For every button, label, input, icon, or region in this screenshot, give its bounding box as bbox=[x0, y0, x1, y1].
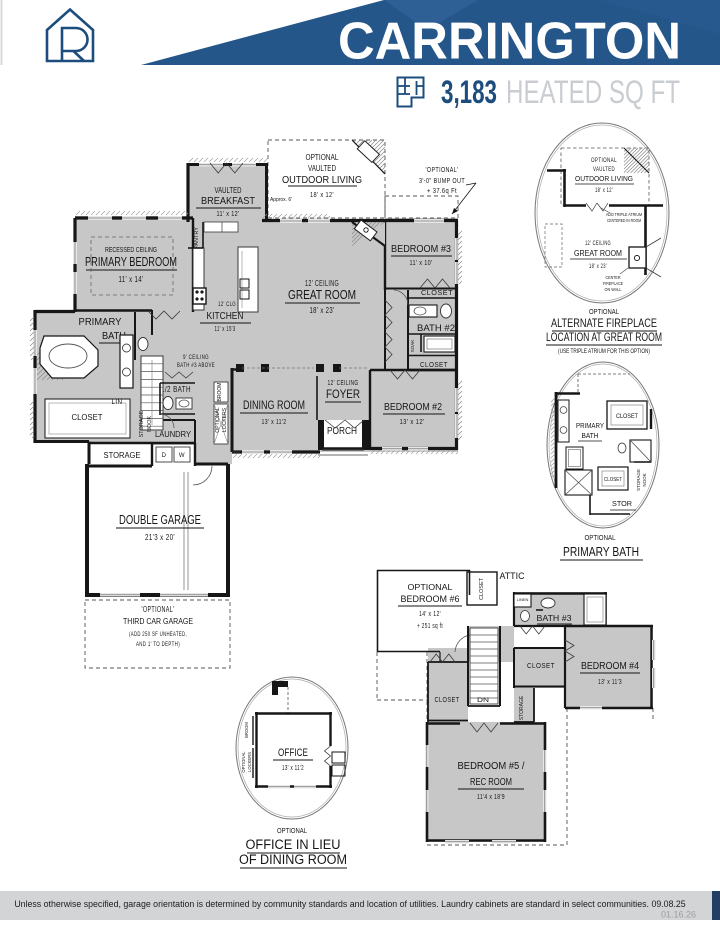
svg-text:11' x 14': 11' x 14' bbox=[119, 275, 144, 284]
svg-text:PORCH: PORCH bbox=[327, 426, 357, 437]
svg-text:LOCKERS: LOCKERS bbox=[247, 752, 252, 772]
svg-text:'OPTIONAL': 'OPTIONAL' bbox=[426, 165, 459, 174]
svg-text:CLOSET: CLOSET bbox=[527, 661, 555, 670]
svg-text:ADD TRIPLE ATRIUM: ADD TRIPLE ATRIUM bbox=[606, 212, 642, 217]
svg-text:VAULTED: VAULTED bbox=[215, 186, 242, 195]
svg-text:Approx. 6': Approx. 6' bbox=[270, 197, 292, 203]
svg-text:3,183: 3,183 bbox=[441, 74, 497, 110]
svg-text:DN: DN bbox=[477, 697, 489, 704]
svg-text:GREAT ROOM: GREAT ROOM bbox=[574, 248, 622, 258]
svg-text:CLOSET: CLOSET bbox=[604, 477, 623, 483]
svg-text:+ 251 sq ft: + 251 sq ft bbox=[417, 623, 443, 630]
svg-text:BROOM: BROOM bbox=[244, 722, 249, 738]
svg-text:OFFICE: OFFICE bbox=[278, 747, 308, 759]
svg-text:ON WALL: ON WALL bbox=[605, 287, 623, 292]
svg-text:BATH: BATH bbox=[582, 433, 599, 440]
svg-text:13' x 11'2: 13' x 11'2 bbox=[262, 417, 287, 426]
svg-text:OFFICE IN LIEU: OFFICE IN LIEU bbox=[246, 837, 341, 852]
svg-text:OPTIONAL: OPTIONAL bbox=[589, 309, 619, 316]
svg-text:LIN: LIN bbox=[112, 400, 123, 406]
svg-text:LINEN: LINEN bbox=[517, 597, 529, 602]
svg-text:PRIMARY BEDROOM: PRIMARY BEDROOM bbox=[85, 255, 177, 269]
svg-text:CLOSET: CLOSET bbox=[420, 360, 448, 369]
svg-text:OPTIONAL: OPTIONAL bbox=[241, 751, 246, 773]
svg-text:OPTIONAL: OPTIONAL bbox=[215, 407, 221, 433]
svg-text:11' x 15'3: 11' x 15'3 bbox=[215, 326, 236, 333]
svg-text:01.16.26: 01.16.26 bbox=[661, 910, 696, 920]
svg-text:ALTERNATE FIREPLACE: ALTERNATE FIREPLACE bbox=[551, 318, 657, 330]
svg-text:9' CEILING: 9' CEILING bbox=[183, 355, 209, 361]
svg-text:CLOSET: CLOSET bbox=[479, 577, 485, 600]
svg-text:KITCHEN: KITCHEN bbox=[207, 310, 244, 322]
svg-text:BEDROOM #4: BEDROOM #4 bbox=[581, 661, 639, 672]
svg-text:STORAGE: STORAGE bbox=[519, 695, 525, 720]
svg-text:VAULTED: VAULTED bbox=[308, 164, 336, 173]
svg-text:GREAT ROOM: GREAT ROOM bbox=[288, 288, 356, 302]
svg-text:HEATED SQ FT: HEATED SQ FT bbox=[506, 74, 680, 110]
svg-text:(ADD 250 SF UNHEATED,: (ADD 250 SF UNHEATED, bbox=[129, 631, 187, 638]
svg-text:THIRD CAR GARAGE: THIRD CAR GARAGE bbox=[123, 616, 193, 626]
svg-text:STORAGE: STORAGE bbox=[139, 410, 145, 437]
svg-text:BEDROOM #2: BEDROOM #2 bbox=[384, 401, 442, 413]
svg-text:1/2 BATH: 1/2 BATH bbox=[161, 385, 191, 394]
svg-text:BATH #2: BATH #2 bbox=[417, 323, 455, 334]
svg-text:BEDROOM #3: BEDROOM #3 bbox=[391, 243, 451, 255]
svg-text:OPTIONAL: OPTIONAL bbox=[277, 828, 307, 835]
svg-text:Unless otherwise specified, ga: Unless otherwise specified, garage orien… bbox=[14, 899, 685, 909]
svg-text:LOCKERS: LOCKERS bbox=[222, 407, 228, 432]
svg-text:NOOK: NOOK bbox=[147, 416, 153, 433]
svg-text:18' x 23': 18' x 23' bbox=[589, 264, 607, 270]
svg-text:OUTDOOR LIVING: OUTDOOR LIVING bbox=[575, 174, 633, 183]
svg-text:BROOM: BROOM bbox=[217, 383, 223, 402]
svg-text:DOUBLE GARAGE: DOUBLE GARAGE bbox=[119, 513, 201, 527]
svg-text:BEDROOM #6: BEDROOM #6 bbox=[401, 594, 460, 605]
svg-text:D: D bbox=[162, 453, 167, 459]
svg-text:NOOK: NOOK bbox=[642, 473, 647, 486]
svg-text:13' x 12': 13' x 12' bbox=[400, 417, 425, 426]
svg-text:REC ROOM: REC ROOM bbox=[470, 777, 512, 788]
svg-text:12' CEILING: 12' CEILING bbox=[305, 279, 339, 288]
svg-text:RECESSED CEILING: RECESSED CEILING bbox=[105, 247, 157, 254]
svg-text:BATH #3 ABOVE: BATH #3 ABOVE bbox=[177, 363, 215, 369]
svg-text:BREAKFAST: BREAKFAST bbox=[201, 195, 256, 207]
svg-text:SOAK: SOAK bbox=[410, 340, 415, 353]
svg-text:ATTIC: ATTIC bbox=[500, 571, 525, 581]
svg-text:CLOSET: CLOSET bbox=[72, 413, 103, 422]
svg-text:12' CEILING: 12' CEILING bbox=[585, 241, 611, 247]
svg-text:W: W bbox=[179, 453, 185, 459]
svg-text:BEDROOM #5 /: BEDROOM #5 / bbox=[458, 761, 525, 772]
svg-text:13' x 11'2: 13' x 11'2 bbox=[282, 765, 304, 772]
svg-text:PANTRY: PANTRY bbox=[194, 227, 200, 249]
svg-text:BATH #3: BATH #3 bbox=[537, 613, 572, 623]
svg-text:12' CEILING: 12' CEILING bbox=[328, 378, 359, 387]
svg-text:CENTER: CENTER bbox=[606, 275, 621, 280]
svg-text:CLOSET: CLOSET bbox=[616, 414, 638, 420]
svg-text:OPTIONAL: OPTIONAL bbox=[591, 158, 617, 164]
svg-text:OPTIONAL: OPTIONAL bbox=[585, 535, 616, 542]
svg-text:18' x 12': 18' x 12' bbox=[310, 190, 334, 199]
svg-text:PRIMARY BATH: PRIMARY BATH bbox=[563, 544, 639, 559]
svg-text:CLOSET: CLOSET bbox=[421, 288, 453, 297]
svg-text:+ 37.6q Ft: + 37.6q Ft bbox=[427, 186, 457, 195]
svg-text:STORAGE: STORAGE bbox=[636, 469, 641, 491]
svg-text:11'4 x 18'9: 11'4 x 18'9 bbox=[477, 794, 505, 801]
svg-text:11' x 10': 11' x 10' bbox=[410, 258, 433, 267]
svg-text:OUTDOOR LIVING: OUTDOOR LIVING bbox=[282, 174, 362, 186]
svg-text:CARRINGTON: CARRINGTON bbox=[338, 13, 681, 71]
svg-text:STORAGE: STORAGE bbox=[104, 451, 141, 460]
svg-text:21'3 x 20': 21'3 x 20' bbox=[145, 533, 175, 542]
svg-text:AND 1' TO DEPTH): AND 1' TO DEPTH) bbox=[136, 641, 180, 648]
svg-text:OF DINING ROOM: OF DINING ROOM bbox=[239, 852, 347, 867]
svg-text:CENTERED IN ROOM: CENTERED IN ROOM bbox=[607, 218, 641, 223]
svg-text:OPTIONAL: OPTIONAL bbox=[408, 582, 453, 592]
svg-text:14' x 12': 14' x 12' bbox=[419, 611, 441, 618]
svg-text:FOYER: FOYER bbox=[326, 389, 360, 401]
svg-text:LOCATION AT GREAT ROOM: LOCATION AT GREAT ROOM bbox=[546, 332, 662, 344]
svg-text:3'-0" BUMP OUT: 3'-0" BUMP OUT bbox=[419, 176, 465, 185]
svg-text:DINING ROOM: DINING ROOM bbox=[243, 400, 305, 412]
svg-text:VAULTED: VAULTED bbox=[593, 167, 615, 173]
svg-text:CLOSET: CLOSET bbox=[435, 695, 460, 704]
svg-text:PRIMARY: PRIMARY bbox=[79, 316, 122, 328]
svg-text:(USE TRIPLE ATRIUM FOR THIS OP: (USE TRIPLE ATRIUM FOR THIS OPTION) bbox=[558, 348, 650, 355]
svg-text:STOR: STOR bbox=[612, 499, 633, 508]
svg-text:OPTIONAL: OPTIONAL bbox=[306, 153, 339, 162]
svg-text:12' CLG: 12' CLG bbox=[218, 301, 236, 308]
svg-text:13' x 11'3: 13' x 11'3 bbox=[598, 679, 622, 686]
svg-text:FIREPLACE: FIREPLACE bbox=[603, 281, 623, 286]
svg-text:'OPTIONAL': 'OPTIONAL' bbox=[142, 605, 175, 614]
svg-text:18' x 12': 18' x 12' bbox=[595, 188, 613, 194]
svg-text:PRIMARY: PRIMARY bbox=[576, 423, 604, 430]
svg-text:18' x 23': 18' x 23' bbox=[310, 306, 335, 315]
svg-text:11' x 12': 11' x 12' bbox=[217, 209, 240, 218]
svg-text:LAUNDRY: LAUNDRY bbox=[155, 430, 192, 439]
